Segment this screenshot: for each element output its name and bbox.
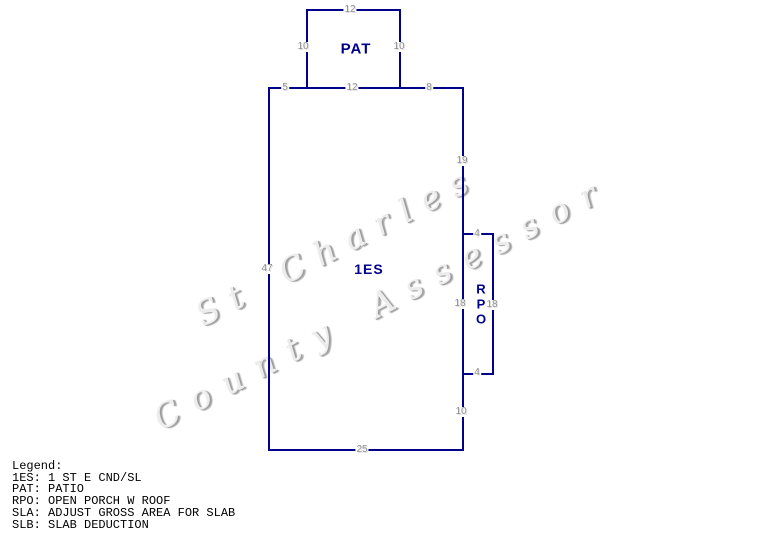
legend: Legend: 1ES:1 ST E CND/SL PAT:PATIO RPO:… (12, 461, 235, 531)
assessor-sketch-canvas: St Charles County Assessor 12 10 10 5 12… (0, 0, 762, 546)
legend-abbr-slb: SLB: (12, 520, 48, 532)
main-wall-right (462, 87, 464, 451)
dim-rpo-bottom: 4 (473, 368, 481, 378)
area-label-patio: PAT (341, 41, 372, 58)
legend-entry-1es: 1ES:1 ST E CND/SL (12, 473, 235, 485)
dim-patio-left: 10 (296, 42, 309, 52)
dim-main-top-left: 5 (281, 83, 289, 93)
dim-patio-right: 10 (392, 42, 405, 52)
legend-desc-slb: SLAB DEDUCTION (48, 520, 149, 532)
dim-rpo-left: 18 (453, 299, 466, 309)
watermark-line1: St Charles (189, 157, 486, 334)
dim-left-side: 47 (260, 264, 273, 274)
dim-right-upper: 19 (455, 156, 468, 166)
area-label-main: 1ES (354, 261, 383, 277)
dim-rpo-top: 4 (473, 229, 481, 239)
dim-main-top-mid: 12 (345, 83, 358, 93)
watermark-line2: County Assessor (147, 168, 617, 438)
dim-bottom: 25 (355, 445, 368, 455)
dim-right-lower: 10 (454, 407, 467, 417)
main-wall-top (268, 87, 464, 89)
area-label-porch: RPO (476, 282, 487, 327)
dim-main-top-right: 8 (425, 83, 433, 93)
legend-entry-slb: SLB:SLAB DEDUCTION (12, 520, 235, 532)
dim-rpo-right: 18 (485, 300, 498, 310)
dim-patio-top: 12 (343, 5, 356, 15)
